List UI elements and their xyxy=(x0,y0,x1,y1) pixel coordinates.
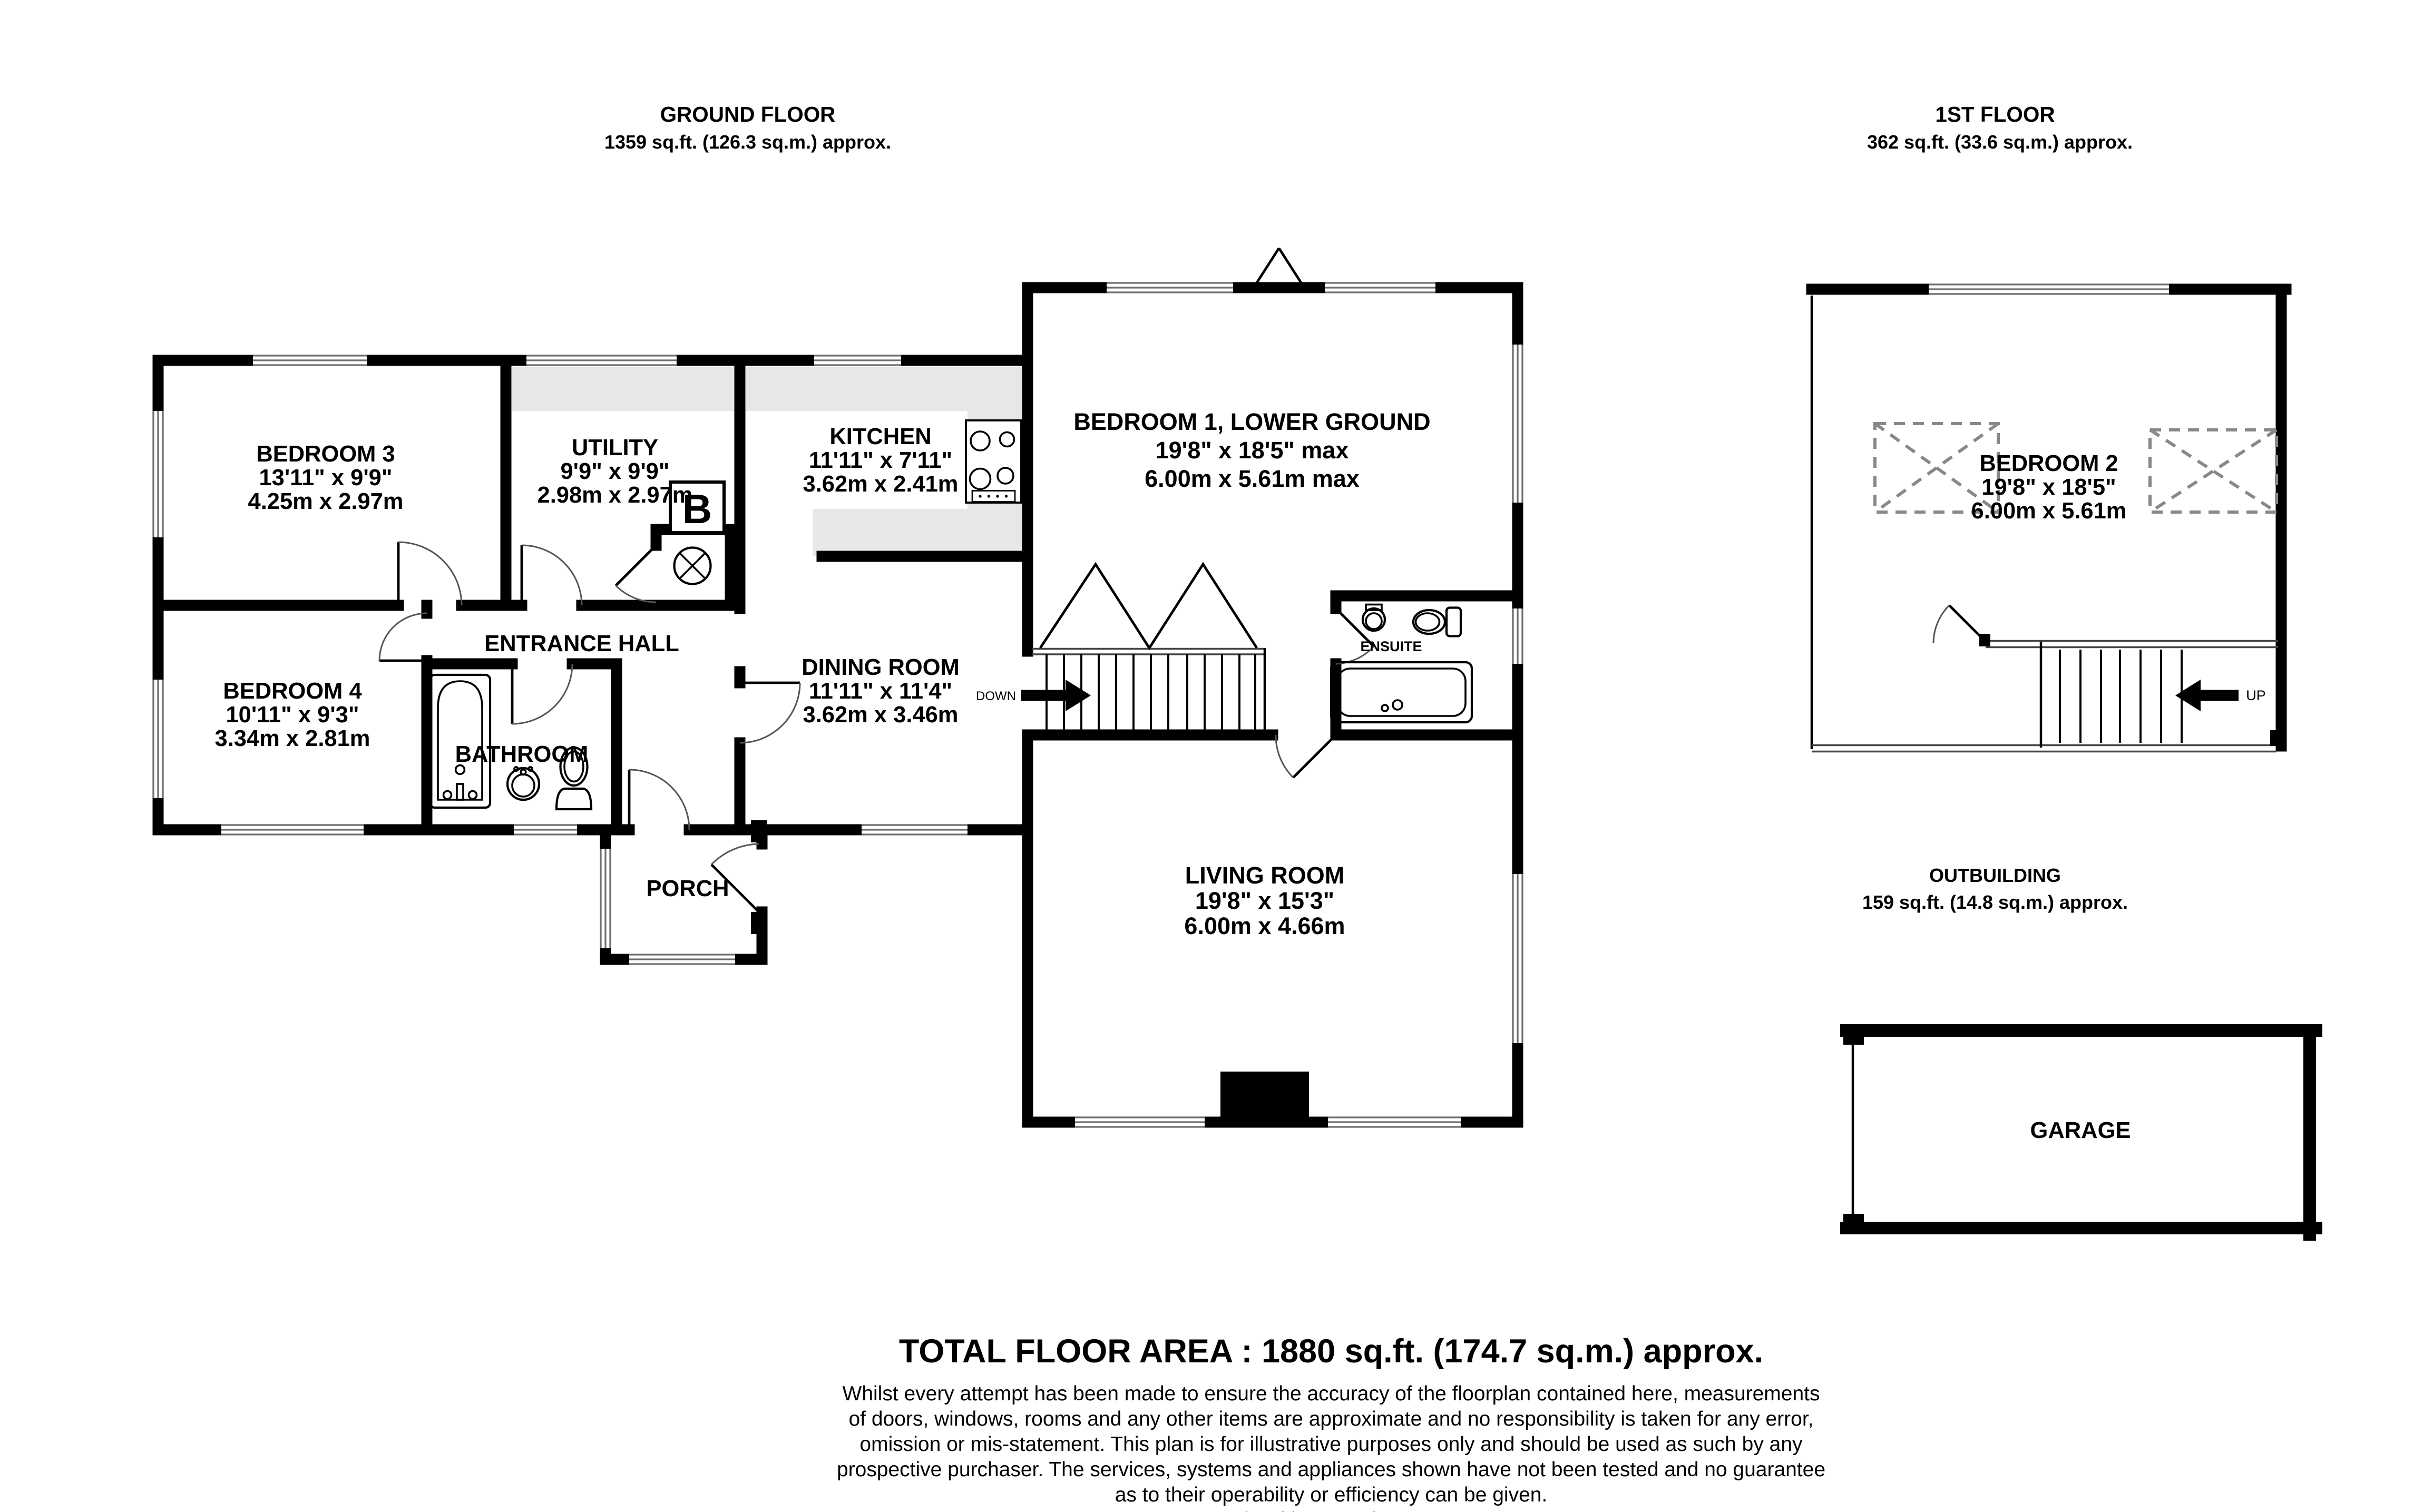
floorplan-canvas: B xyxy=(0,0,2433,1512)
disclaimer-line-4: prospective purchaser. The services, sys… xyxy=(837,1458,1825,1481)
room-bedroom4: BEDROOM 4 10'11" x 9'3" 3.34m x 2.81m xyxy=(215,679,370,751)
bathroom-name: BATHROOM xyxy=(455,742,589,767)
door-bathroom xyxy=(512,664,572,724)
living-metric: 6.00m x 4.66m xyxy=(1184,912,1345,939)
window-utility-top xyxy=(526,355,677,366)
ground-floor-subtitle: 1359 sq.ft. (126.3 sq.m.) approx. xyxy=(604,131,891,153)
floorplan-page: B xyxy=(0,0,2433,1512)
room-bedroom1: BEDROOM 1, LOWER GROUND 19'8" x 18'5" ma… xyxy=(1073,408,1430,492)
utility-name: UTILITY xyxy=(572,435,658,460)
floor-headers: GROUND FLOOR 1359 sq.ft. (126.3 sq.m.) a… xyxy=(604,102,2133,913)
bedroom3-metric: 4.25m x 2.97m xyxy=(248,489,404,514)
disclaimer-line-5: as to their operability or efficiency ca… xyxy=(1115,1484,1548,1506)
utility-counter xyxy=(512,367,735,411)
kitchen-metric: 3.62m x 2.41m xyxy=(803,472,959,497)
ensuite-bath-icon xyxy=(1331,662,1472,722)
door-cylinder-closet xyxy=(616,545,657,602)
bedroom4-name: BEDROOM 4 xyxy=(223,679,361,704)
room-ensuite: ENSUITE xyxy=(1361,639,1422,654)
outbuilding-subtitle: 159 sq.ft. (14.8 sq.m.) approx. xyxy=(1862,891,2128,913)
room-entrance-hall: ENTRANCE HALL xyxy=(484,631,679,656)
garage-name: GARAGE xyxy=(2030,1118,2131,1143)
bedroom3-imperial: 13'11" x 9'9" xyxy=(259,465,393,490)
room-porch: PORCH xyxy=(646,876,729,901)
bedroom1-metric: 6.00m x 5.61m max xyxy=(1145,465,1360,492)
bedroom1-imperial: 19'8" x 18'5" max xyxy=(1156,437,1349,464)
dining-metric: 3.62m x 3.46m xyxy=(803,702,959,728)
ensuite-name: ENSUITE xyxy=(1361,639,1422,654)
window-kitchen-top xyxy=(814,355,901,366)
room-bedroom3: BEDROOM 3 13'11" x 9'9" 4.25m x 2.97m xyxy=(248,441,404,514)
door-front xyxy=(629,770,689,830)
kitchen-imperial: 11'11" x 7'11" xyxy=(809,448,952,473)
disclaimer-line-2: of doors, windows, rooms and any other i… xyxy=(848,1408,1813,1430)
kitchen-name: KITCHEN xyxy=(829,424,931,449)
bedroom3-name: BEDROOM 3 xyxy=(256,441,395,467)
room-utility: UTILITY 9'9" x 9'9" 2.98m x 2.97m xyxy=(538,435,693,508)
footer: TOTAL FLOOR AREA : 1880 sq.ft. (174.7 sq… xyxy=(837,1333,1825,1512)
window-bedroom3-top xyxy=(253,355,367,366)
room-bedroom2: BEDROOM 2 19'8" x 18'5" 6.00m x 5.61m xyxy=(1971,451,2127,524)
dining-name: DINING ROOM xyxy=(802,655,960,680)
door-bedroom1-patio xyxy=(1254,248,1304,288)
up-label: UP xyxy=(2246,688,2266,703)
doors-bedroom1-inner xyxy=(1040,564,1257,648)
door-bedroom4 xyxy=(379,613,427,661)
ensuite-fixtures xyxy=(1331,604,1472,722)
room-garage: GARAGE xyxy=(2030,1118,2131,1143)
porch-name: PORCH xyxy=(646,876,729,901)
stairs-down xyxy=(1021,648,1265,735)
window-bathroom-bottom xyxy=(514,824,577,835)
window-bedroom4-bottom xyxy=(221,824,364,835)
room-bathroom: BATHROOM xyxy=(455,742,589,767)
down-label: DOWN xyxy=(976,689,1016,703)
window-bedroom4-left xyxy=(153,680,164,798)
bedroom1-name: BEDROOM 1, LOWER GROUND xyxy=(1073,408,1430,435)
dining-imperial: 11'11" x 11'4" xyxy=(809,679,952,704)
total-floor-area: TOTAL FLOOR AREA : 1880 sq.ft. (174.7 sq… xyxy=(899,1333,1763,1370)
disclaimer-line-1: Whilst every attempt has been made to en… xyxy=(843,1382,1820,1405)
door-dining xyxy=(740,683,800,743)
hob-icon xyxy=(966,420,1021,503)
window-bedroom1-top-left xyxy=(1107,282,1233,293)
entrance-hall-name: ENTRANCE HALL xyxy=(484,631,679,656)
door-utility xyxy=(522,545,582,605)
ensuite-toilet-icon xyxy=(1413,607,1461,636)
window-living-bottom-left xyxy=(1075,1116,1205,1127)
cylinder-icon xyxy=(675,547,711,584)
utility-imperial: 9'9" x 9'9" xyxy=(560,459,669,484)
bedroom2-imperial: 19'8" x 18'5" xyxy=(1981,475,2116,500)
window-ensuite-right xyxy=(1512,608,1523,664)
window-living-bottom-right xyxy=(1328,1116,1461,1127)
bedroom2-metric: 6.00m x 5.61m xyxy=(1971,498,2127,524)
bedroom4-metric: 3.34m x 2.81m xyxy=(215,726,370,751)
door-living xyxy=(1276,735,1336,778)
ground-floor-title: GROUND FLOOR xyxy=(660,102,836,126)
restricted-height-right xyxy=(2150,430,2276,512)
up-arrow-icon xyxy=(2175,680,2239,711)
window-living-right xyxy=(1512,874,1523,1043)
door-stairs-first xyxy=(1933,605,1987,643)
credit-line: Made with Metropix ©2025 xyxy=(1209,1509,1453,1512)
bedroom2-name: BEDROOM 2 xyxy=(1979,451,2118,476)
room-dining: DINING ROOM 11'11" x 11'4" 3.62m x 3.46m xyxy=(802,655,960,728)
window-porch-left xyxy=(600,849,611,948)
window-porch-bottom xyxy=(629,954,735,965)
window-bedroom1-top-right xyxy=(1325,282,1435,293)
window-bedroom1-right xyxy=(1512,345,1523,503)
bedroom4-imperial: 10'11" x 9'3" xyxy=(226,702,359,728)
disclaimer-line-3: omission or mis-statement. This plan is … xyxy=(859,1433,1803,1456)
room-kitchen: KITCHEN 11'11" x 7'11" 3.62m x 2.41m xyxy=(803,424,959,497)
first-floor-subtitle: 362 sq.ft. (33.6 sq.m.) approx. xyxy=(1867,131,2133,153)
utility-metric: 2.98m x 2.97m xyxy=(538,483,693,508)
room-living: LIVING ROOM 19'8" x 15'3" 6.00m x 4.66m xyxy=(1184,862,1345,939)
window-bedroom3-left xyxy=(153,411,164,537)
outbuilding-title: OUTBUILDING xyxy=(1929,865,2061,886)
sink-icon xyxy=(507,767,539,800)
door-bedroom3 xyxy=(398,542,462,605)
living-name: LIVING ROOM xyxy=(1185,862,1344,889)
ensuite-sink-icon xyxy=(1363,604,1385,630)
first-floor-title: 1ST FLOOR xyxy=(1935,102,2055,126)
chimney-breast xyxy=(1220,1072,1309,1122)
living-imperial: 19'8" x 15'3" xyxy=(1195,887,1334,914)
window-dining-bottom xyxy=(862,824,968,835)
stairs-up xyxy=(1933,605,2239,743)
window-first-top xyxy=(1929,283,2169,294)
